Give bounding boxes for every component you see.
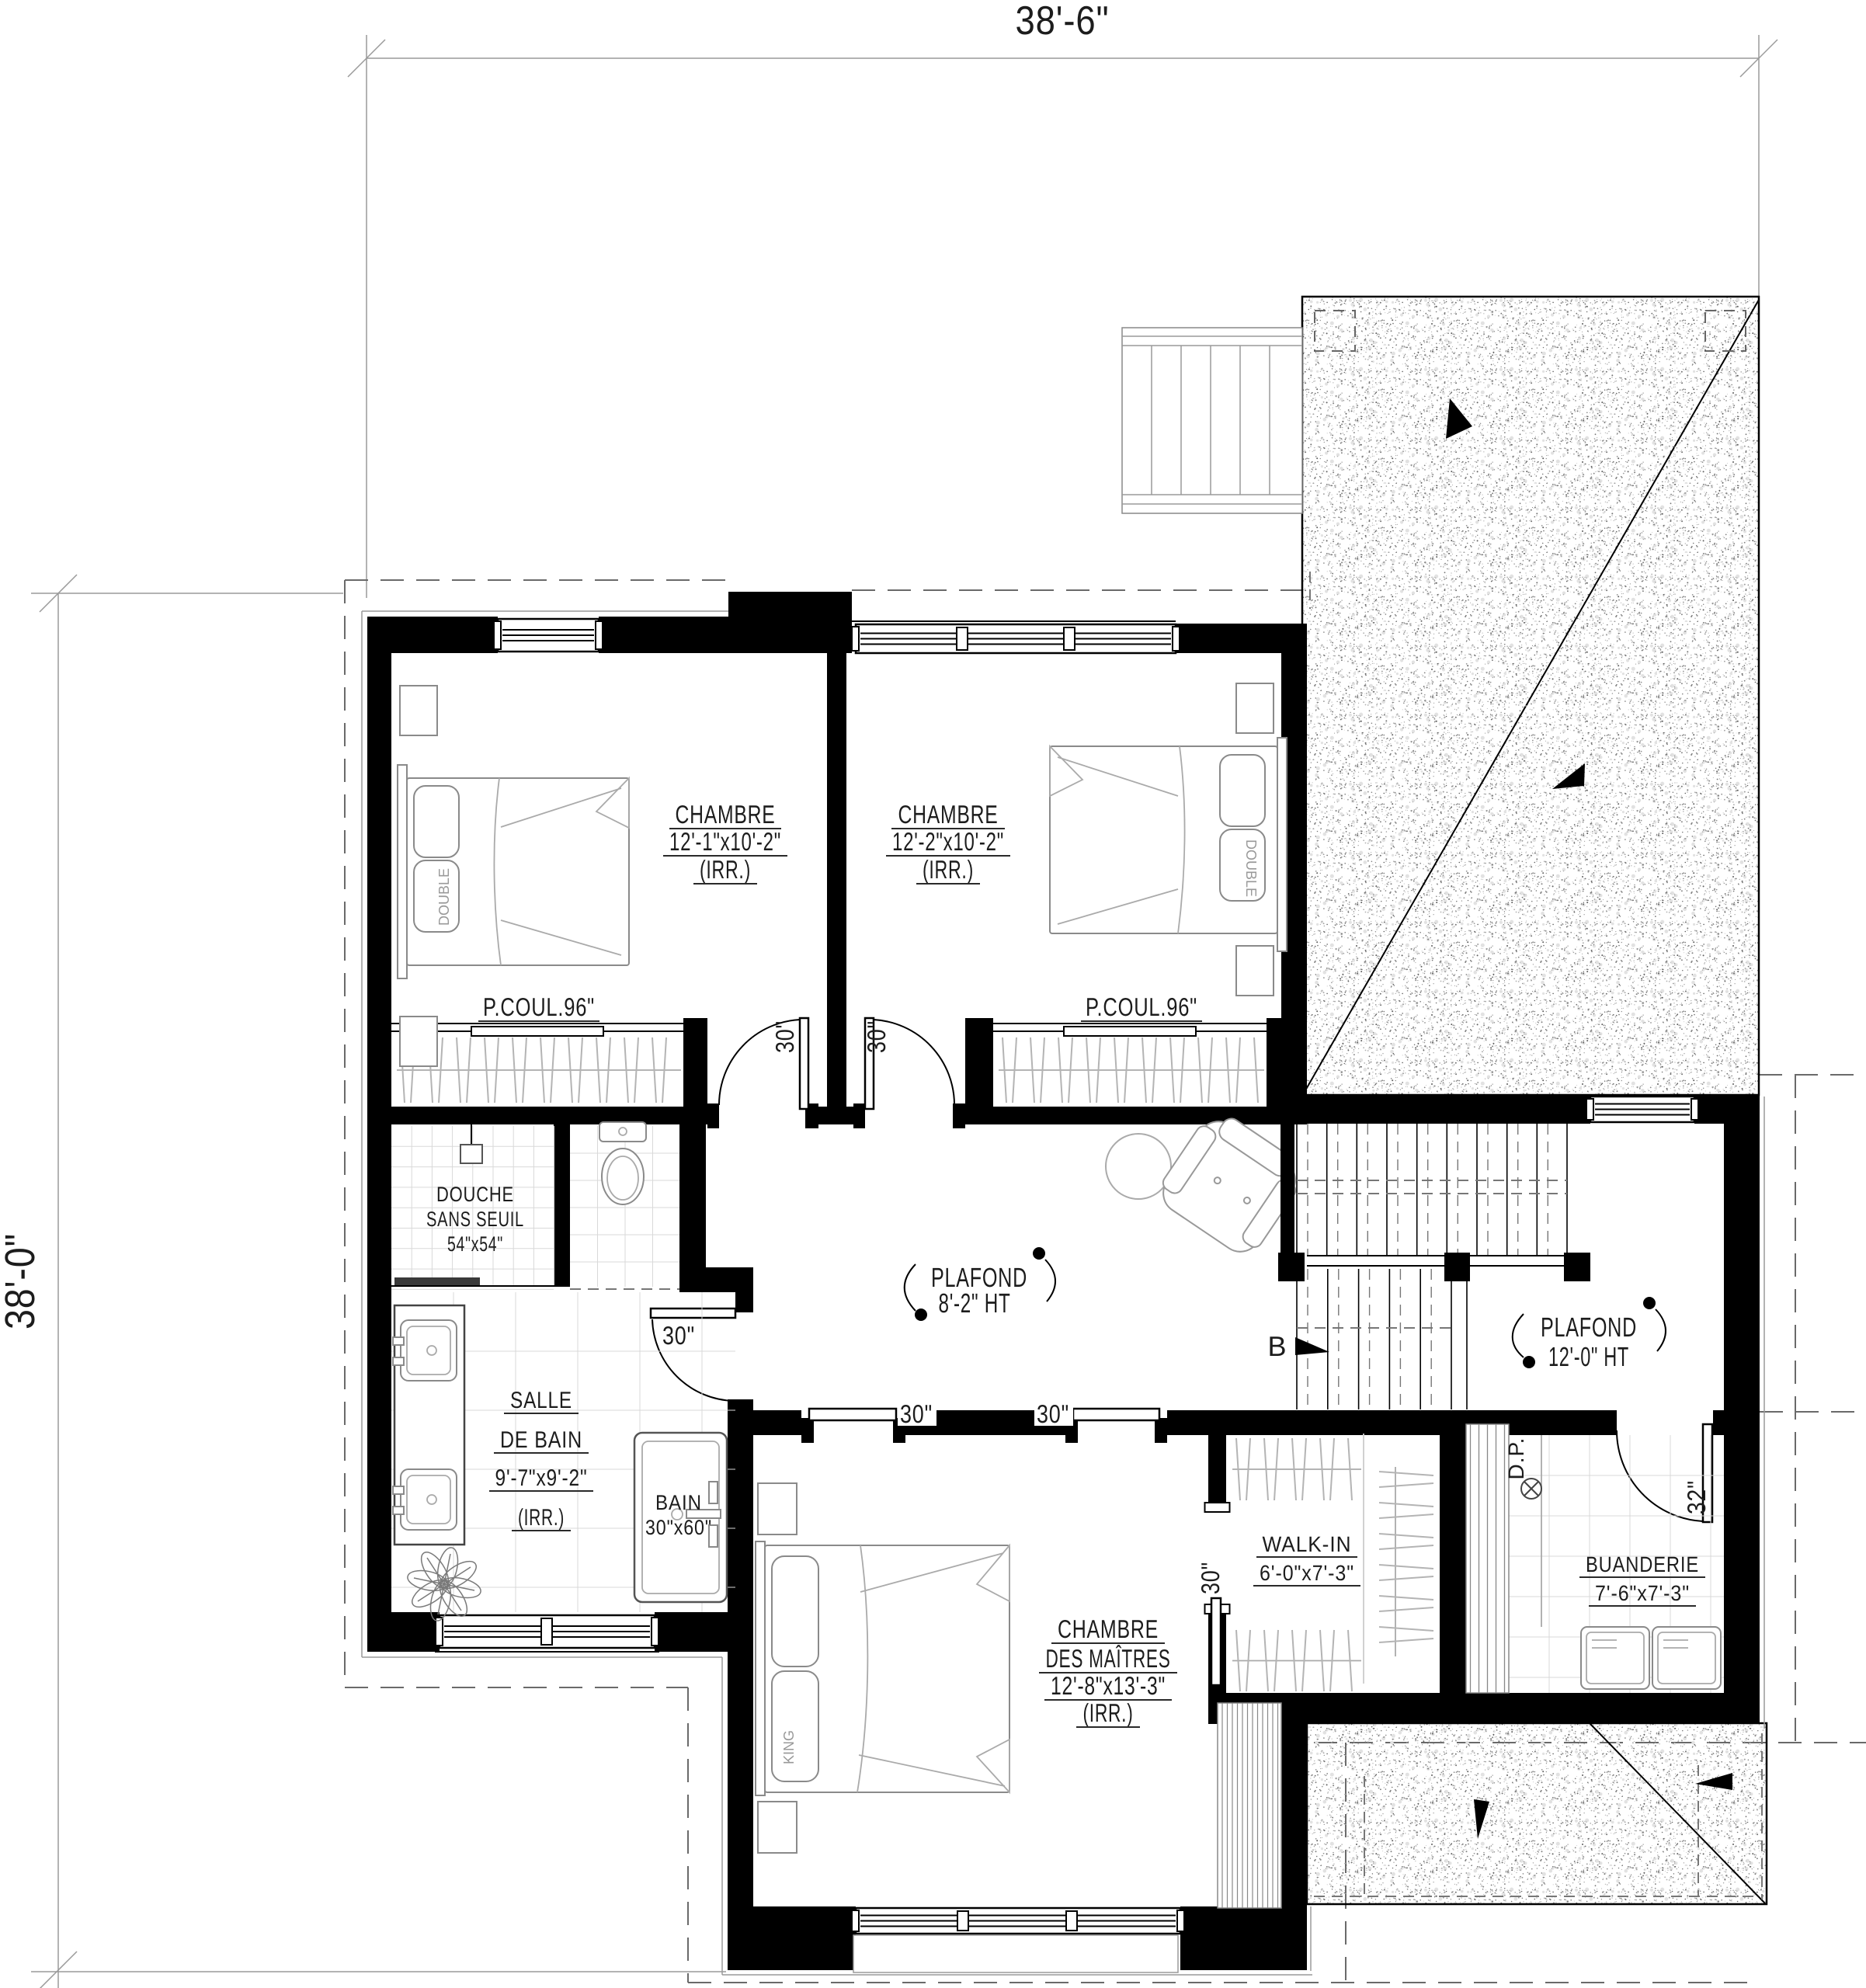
svg-text:WALK-IN: WALK-IN [1263, 1532, 1352, 1556]
svg-text:(IRR.): (IRR.) [1083, 1698, 1134, 1727]
svg-text:DES MAÎTRES: DES MAÎTRES [1046, 1644, 1171, 1673]
svg-text:30": 30" [1196, 1562, 1225, 1594]
svg-text:DOUBLE: DOUBLE [1243, 839, 1259, 897]
svg-text:SANS SEUIL: SANS SEUIL [426, 1208, 524, 1231]
svg-text:BUANDERIE: BUANDERIE [1586, 1552, 1699, 1576]
svg-text:30": 30" [862, 1020, 891, 1053]
svg-text:DE BAIN: DE BAIN [500, 1427, 582, 1453]
svg-text:KING: KING [781, 1730, 797, 1764]
svg-text:7'-6"x7'-3": 7'-6"x7'-3" [1595, 1581, 1690, 1605]
svg-text:BAIN: BAIN [655, 1491, 702, 1514]
svg-text:P.COUL.96": P.COUL.96" [483, 992, 595, 1021]
svg-text:CHAMBRE: CHAMBRE [676, 800, 776, 829]
svg-text:CHAMBRE: CHAMBRE [898, 800, 999, 829]
svg-text:30": 30" [662, 1321, 695, 1350]
svg-text:12'-0" HT: 12'-0" HT [1548, 1342, 1629, 1372]
svg-text:6'-0"x7'-3": 6'-0"x7'-3" [1260, 1561, 1354, 1585]
svg-text:12'-8"x13'-3": 12'-8"x13'-3" [1051, 1671, 1166, 1700]
svg-text:30": 30" [1037, 1399, 1069, 1428]
svg-text:PLAFOND: PLAFOND [1541, 1312, 1637, 1343]
svg-text:SALLE: SALLE [510, 1388, 572, 1413]
svg-text:32": 32" [1682, 1480, 1711, 1514]
svg-text:30"x60": 30"x60" [645, 1516, 712, 1539]
svg-text:B: B [1267, 1330, 1287, 1362]
svg-text:CHAMBRE: CHAMBRE [1058, 1614, 1159, 1643]
svg-text:DOUCHE: DOUCHE [436, 1183, 514, 1206]
svg-text:8'-2" HT: 8'-2" HT [939, 1288, 1011, 1319]
svg-text:P.COUL.96": P.COUL.96" [1086, 992, 1197, 1021]
svg-text:(IRR.): (IRR.) [518, 1505, 565, 1531]
svg-text:D.P.: D.P. [1504, 1437, 1528, 1480]
svg-text:30": 30" [900, 1399, 933, 1428]
svg-text:(IRR.): (IRR.) [923, 855, 974, 884]
svg-text:54"x54": 54"x54" [447, 1232, 503, 1256]
svg-text:30": 30" [770, 1020, 799, 1053]
svg-text:38'-0": 38'-0" [0, 1233, 43, 1329]
svg-text:(IRR.): (IRR.) [700, 855, 751, 884]
svg-text:9'-7"x9'-2": 9'-7"x9'-2" [495, 1465, 588, 1491]
svg-text:38'-6": 38'-6" [1016, 0, 1110, 43]
svg-text:12'-1"x10'-2": 12'-1"x10'-2" [669, 827, 781, 856]
svg-text:12'-2"x10'-2": 12'-2"x10'-2" [892, 827, 1004, 856]
svg-text:DOUBLE: DOUBLE [436, 868, 452, 926]
